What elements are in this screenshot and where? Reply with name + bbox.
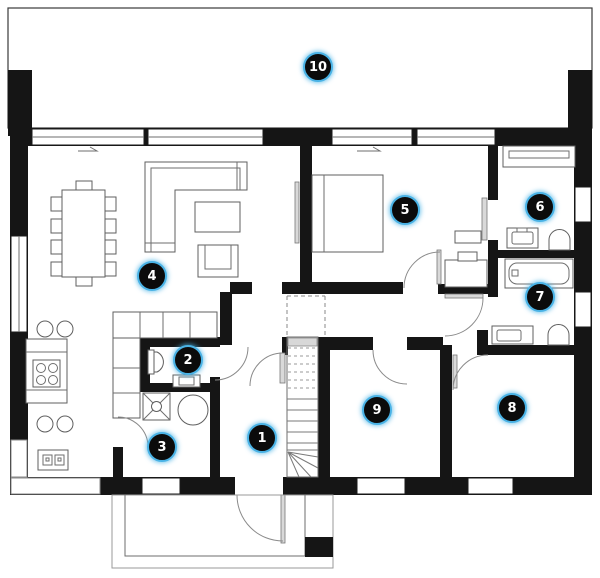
corner-window	[11, 478, 100, 494]
door-hall	[250, 353, 283, 386]
stair-landing	[288, 338, 317, 346]
winder-steps	[288, 452, 318, 477]
porch-pillar	[305, 537, 333, 557]
washing-machine	[143, 393, 170, 420]
room-badge-5: 5	[390, 195, 420, 225]
wardrobe	[503, 146, 575, 167]
room-badge-8: 8	[497, 393, 527, 423]
room-badge-3: 3	[147, 432, 177, 462]
void-outline	[287, 296, 325, 337]
coffee-table	[195, 202, 240, 232]
kitchen-island	[26, 339, 67, 403]
toilet	[548, 325, 569, 346]
room-badge-2: 2	[173, 345, 203, 375]
stool	[57, 321, 73, 337]
stool	[37, 321, 53, 337]
stool	[57, 416, 73, 432]
living-dining-kitchen	[26, 147, 299, 470]
terrace-outline	[8, 8, 592, 128]
stool	[37, 416, 53, 432]
door-leaf-bathroom6	[482, 198, 487, 240]
corner-window	[11, 440, 27, 477]
door-leaf	[280, 353, 285, 383]
front-door-leaf	[281, 495, 285, 543]
room-badge-1: 1	[247, 423, 277, 453]
utility-room	[143, 393, 208, 425]
room-badge-6: 6	[525, 192, 555, 222]
tv	[295, 182, 299, 243]
window	[468, 478, 513, 494]
shelf	[455, 231, 481, 243]
armchair	[198, 245, 238, 277]
front-door-opening	[235, 477, 283, 495]
porch	[112, 495, 333, 568]
toilet	[148, 350, 154, 374]
terrace-right-pillar	[568, 70, 592, 136]
toilet	[549, 230, 570, 251]
desk	[445, 260, 487, 287]
laundry-basket	[178, 395, 208, 425]
kitchen-sink	[38, 450, 68, 470]
room-badge-4: 4	[137, 261, 167, 291]
window	[575, 187, 591, 222]
toilet-bowl	[154, 352, 163, 372]
floor-plan: 1 2 3 4 5 6 7 8 9 10	[0, 0, 600, 578]
door-bedroom5	[404, 252, 440, 288]
window-opening-mark	[78, 147, 97, 151]
door-utility	[118, 417, 148, 447]
desk-chair	[458, 252, 477, 261]
bed	[312, 175, 383, 252]
room-badge-9: 9	[362, 395, 392, 425]
door-room8	[453, 355, 488, 390]
window	[575, 292, 591, 327]
window	[357, 478, 405, 494]
window	[142, 478, 180, 494]
door-wc	[215, 347, 248, 380]
dining-table	[51, 181, 116, 286]
floor-plan-drawing	[0, 0, 600, 578]
door-room9	[373, 350, 407, 384]
terrace-left-pillar	[8, 70, 32, 136]
room-badge-7: 7	[525, 282, 555, 312]
door-leaf	[437, 250, 441, 284]
terrace	[8, 8, 592, 136]
window-opening-mark	[357, 147, 380, 151]
room-badge-10: 10	[303, 52, 333, 82]
door-leaf	[445, 294, 483, 298]
front-door-swing	[237, 495, 283, 541]
